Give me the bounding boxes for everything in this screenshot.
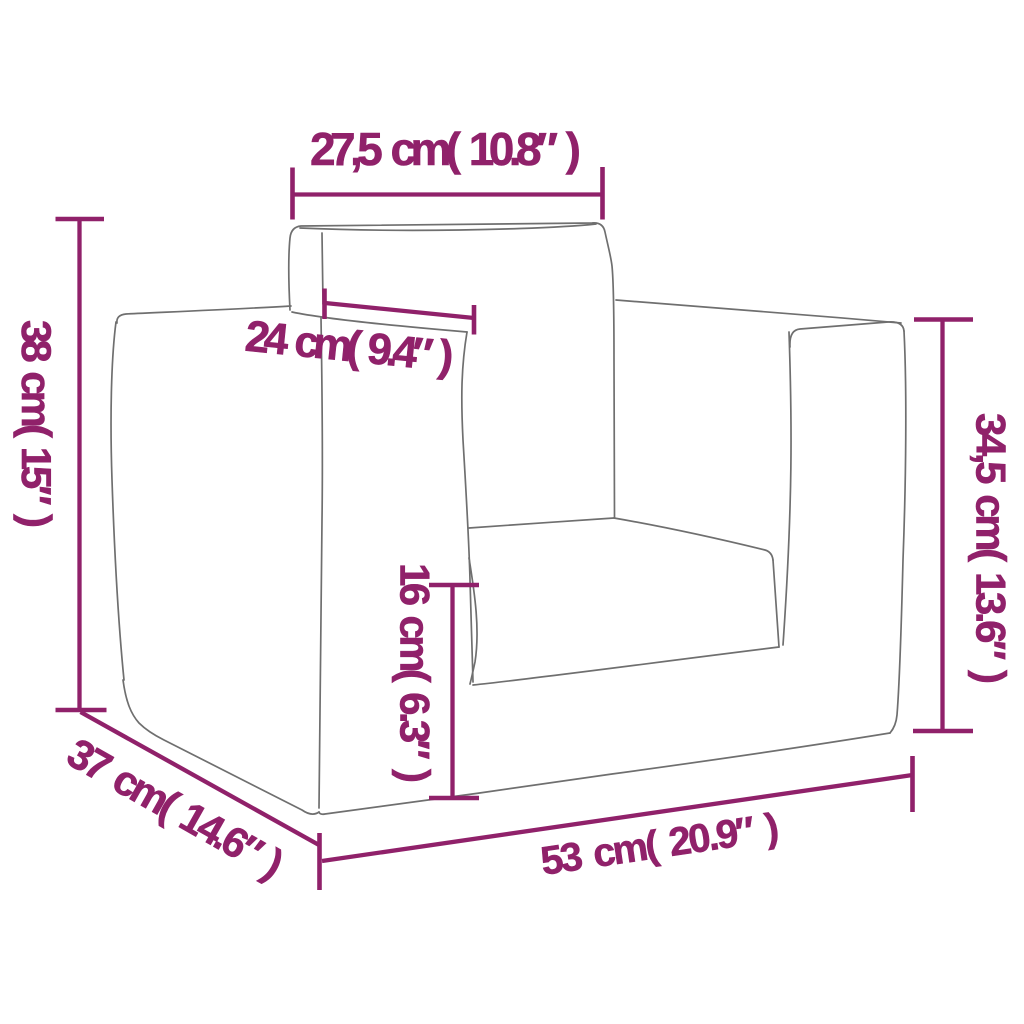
svg-text:34,5 cm( 13.6″ ): 34,5 cm( 13.6″ ) bbox=[968, 413, 1015, 684]
svg-text:27,5 cm( 10.8″ ): 27,5 cm( 10.8″ ) bbox=[310, 123, 581, 175]
svg-text:38 cm( 15″ ): 38 cm( 15″ ) bbox=[13, 320, 60, 528]
svg-text:16 cm( 6.3″ ): 16 cm( 6.3″ ) bbox=[392, 563, 439, 783]
